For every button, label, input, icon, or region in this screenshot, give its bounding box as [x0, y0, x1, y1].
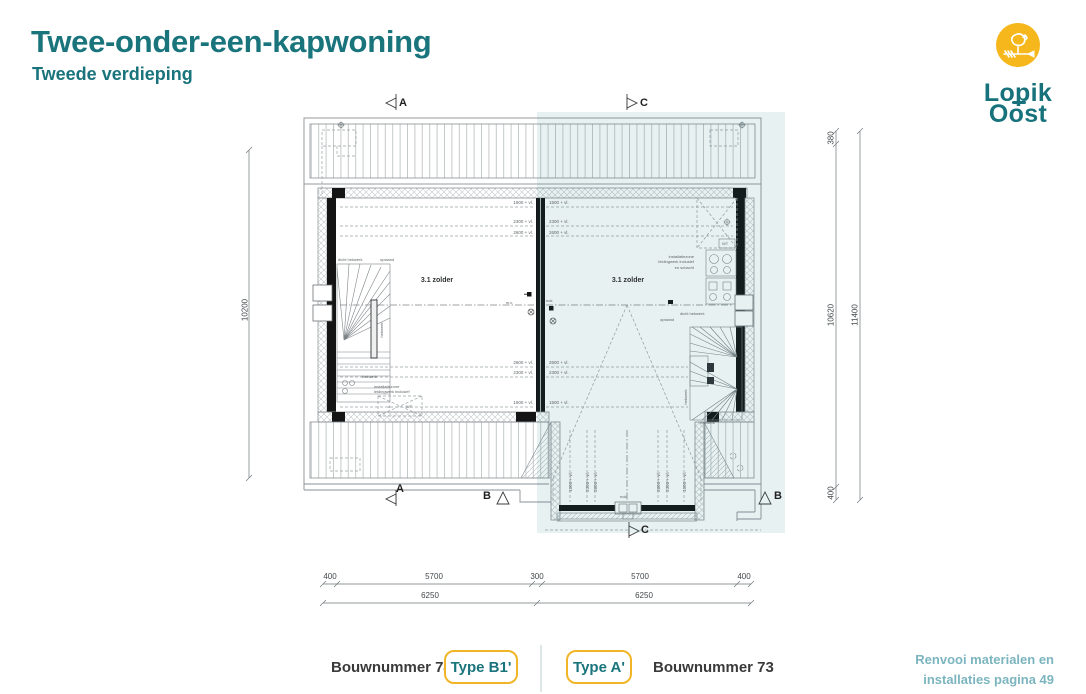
dim-bottom-5700-right: 5700: [631, 572, 649, 581]
room-label-right: 3.1 zolder: [612, 277, 644, 284]
level-label: 2300 + vl.: [549, 371, 569, 376]
footer-divider: [540, 645, 542, 692]
annotation-dicht-hekwerk: dicht hekwerk: [338, 257, 362, 262]
renvooi-note: Renvooi materialen en installaties pagin…: [915, 650, 1054, 690]
level-label: 2300 + vl.: [666, 472, 671, 492]
dim-bottom-6250-left: 6250: [421, 591, 439, 600]
bouwnummer-74-label: Bouwnummer 74: [331, 659, 452, 676]
level-label: 2600 + vl.: [594, 472, 599, 492]
dim-right-total: 11400: [851, 304, 860, 326]
annotation-d: d: [388, 404, 390, 409]
level-label: 2600 + vl.: [657, 472, 662, 492]
annotation-leidingwerk: leidingwerk inclusief: [654, 259, 694, 264]
annotation-wt: WT: [406, 404, 412, 409]
room-label-left: 3.1 zolder: [421, 277, 453, 284]
level-label: 2600 + vl.: [502, 361, 533, 366]
type-b1-badge: Type B1': [444, 650, 518, 684]
annotation-schacht: en schacht: [654, 265, 694, 270]
type-a-badge: Type A': [566, 650, 632, 684]
annotation-wt: WT: [722, 241, 728, 246]
dim-right-400: 400: [827, 486, 836, 499]
section-marker-b-left: B: [483, 490, 491, 502]
annotation-hekwerk: hekwerk: [380, 323, 384, 338]
nok-label: nok: [620, 494, 626, 499]
nok-label: nok: [546, 298, 552, 303]
renvooi-note-line2: installaties pagina 49: [915, 670, 1054, 690]
dim-bottom-6250-right: 6250: [635, 591, 653, 600]
level-label: 1500 + vl.: [549, 401, 569, 406]
section-marker-a-bottom: A: [396, 483, 404, 495]
dim-right-380: 380: [827, 131, 836, 144]
section-marker-a-top: A: [399, 97, 407, 109]
level-label: 2600 + vl.: [549, 361, 569, 366]
level-label: 2600 + vl.: [502, 231, 533, 236]
annotation-opstand: opstand: [380, 257, 394, 262]
annotation-hekwerk: hekwerk: [700, 420, 715, 425]
annotation-leidingwerk: leidingwerk inclusief: [374, 389, 410, 394]
dim-left-total: 10200: [241, 299, 250, 321]
dim-bottom-400-left: 400: [323, 572, 336, 581]
dim-right-10620: 10620: [827, 304, 836, 326]
bouwnummer-73-label: Bouwnummer 73: [653, 659, 774, 676]
level-label: 1500 + vl.: [549, 201, 569, 206]
section-marker-c-top: C: [640, 97, 648, 109]
dim-bottom-400-right: 400: [737, 572, 750, 581]
level-label: 1500 + vl.: [569, 472, 574, 492]
annotation-dicht-hekwerk: dicht hekwerk: [680, 311, 704, 316]
dim-bottom-300: 300: [530, 572, 543, 581]
level-label: 1500 + vl.: [502, 201, 533, 206]
level-label: 2600 + vl.: [549, 231, 569, 236]
section-marker-b-right: B: [774, 490, 782, 502]
level-label: 2300 + vl.: [502, 220, 533, 225]
renvooi-note-line1: Renvooi materialen en: [915, 650, 1054, 670]
annotation-hekwerk: hekwerk: [684, 390, 688, 405]
section-marker-c-bottom: C: [641, 524, 649, 536]
annotation-hekwerk: hekwerk: [362, 374, 377, 379]
level-label: 1500 + vl.: [502, 401, 533, 406]
brochure-page: Twee-onder-een-kapwoning Tweede verdiepi…: [0, 0, 1086, 694]
mv-label: m.v.: [500, 300, 513, 305]
level-label: 2300 + vl.: [502, 371, 533, 376]
level-label: 1500 + vl.: [683, 472, 688, 492]
level-label: 2300 + vl.: [586, 472, 591, 492]
annotation-opstand: opstand: [660, 317, 674, 322]
dim-bottom-5700-left: 5700: [425, 572, 443, 581]
floor-plan-drawing: [0, 0, 1086, 694]
level-label: 2300 + vl.: [549, 220, 569, 225]
